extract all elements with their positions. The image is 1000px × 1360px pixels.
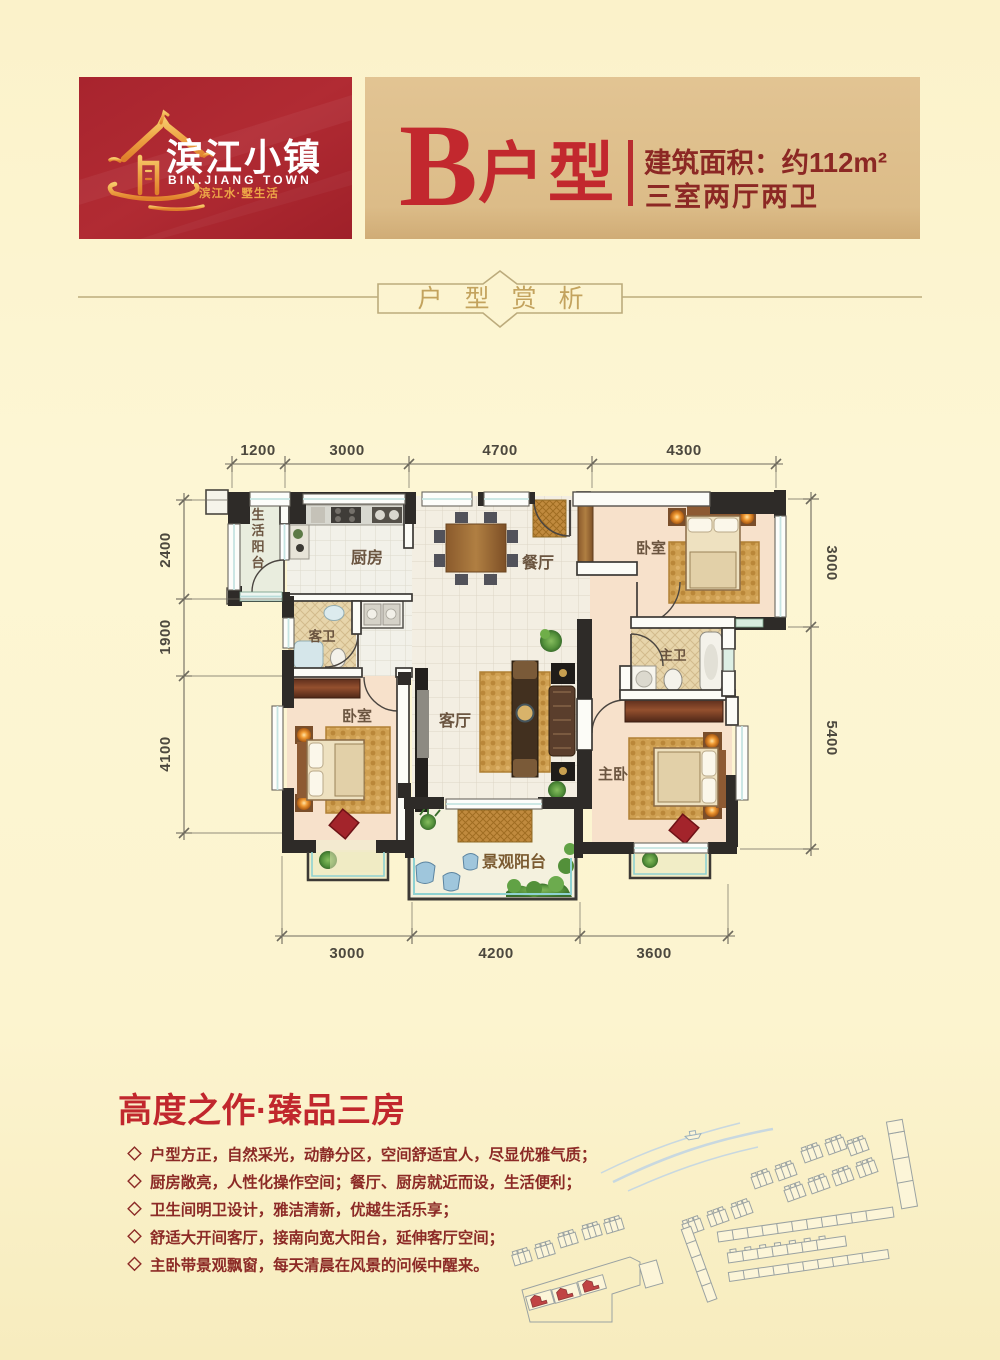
svg-text:3600: 3600 <box>636 945 671 962</box>
svg-text:卧室: 卧室 <box>342 707 372 725</box>
svg-text:建筑面积：约112m²: 建筑面积：约112m² <box>644 147 887 178</box>
svg-text:型: 型 <box>464 285 489 313</box>
svg-text:2400: 2400 <box>157 532 174 567</box>
svg-text:4700: 4700 <box>482 442 517 459</box>
svg-text:赏: 赏 <box>511 285 536 313</box>
svg-text:B: B <box>399 100 478 231</box>
svg-text:3000: 3000 <box>329 442 364 459</box>
svg-text:3000: 3000 <box>329 945 364 962</box>
svg-text:舒适大开间客厅，接南向宽大阳台，延伸客厅空间；: 舒适大开间客厅，接南向宽大阳台，延伸客厅空间； <box>150 1228 504 1247</box>
svg-text:卧室: 卧室 <box>636 539 666 557</box>
svg-text:生活阳台: 生活阳台 <box>251 507 264 570</box>
svg-text:4300: 4300 <box>666 442 701 459</box>
svg-text:客卫: 客卫 <box>308 628 336 644</box>
svg-text:1900: 1900 <box>157 619 174 654</box>
svg-text:4200: 4200 <box>478 945 513 962</box>
svg-text:高度之作·臻品三房: 高度之作·臻品三房 <box>118 1092 406 1130</box>
svg-text:三室两厅两卫: 三室两厅两卫 <box>645 181 819 212</box>
svg-text:3000: 3000 <box>823 545 840 580</box>
svg-text:析: 析 <box>558 285 583 313</box>
svg-text:主卫: 主卫 <box>660 647 688 663</box>
svg-text:户型: 户型 <box>478 136 618 210</box>
svg-text:客厅: 客厅 <box>439 711 471 730</box>
svg-text:滨江小镇: 滨江小镇 <box>166 137 322 178</box>
svg-text:1200: 1200 <box>240 442 275 459</box>
svg-text:厨房: 厨房 <box>351 548 383 567</box>
svg-text:滨江水·墅生活: 滨江水·墅生活 <box>199 186 279 200</box>
svg-text:景观阳台: 景观阳台 <box>482 852 546 871</box>
svg-text:BIN.JIANG TOWN: BIN.JIANG TOWN <box>168 173 312 187</box>
svg-text:5400: 5400 <box>823 720 840 755</box>
svg-text:卫生间明卫设计，雅洁清新，优越生活乐享；: 卫生间明卫设计，雅洁清新，优越生活乐享； <box>150 1200 458 1219</box>
svg-text:餐厅: 餐厅 <box>521 553 554 572</box>
svg-text:户: 户 <box>417 285 442 313</box>
svg-text:4100: 4100 <box>157 736 174 771</box>
svg-text:主卧: 主卧 <box>598 765 628 783</box>
svg-text:厨房敞亮，人性化操作空间；餐厅、厨房就近而设，生活便利；: 厨房敞亮，人性化操作空间；餐厅、厨房就近而设，生活便利； <box>150 1173 581 1192</box>
svg-text:主卧带景观飘窗，每天清晨在风景的问候中醒来。: 主卧带景观飘窗，每天清晨在风景的问候中醒来。 <box>150 1255 489 1274</box>
svg-text:户型方正，自然采光，动静分区，空间舒适宜人，尽显优雅气质；: 户型方正，自然采光，动静分区，空间舒适宜人，尽显优雅气质； <box>150 1145 596 1164</box>
